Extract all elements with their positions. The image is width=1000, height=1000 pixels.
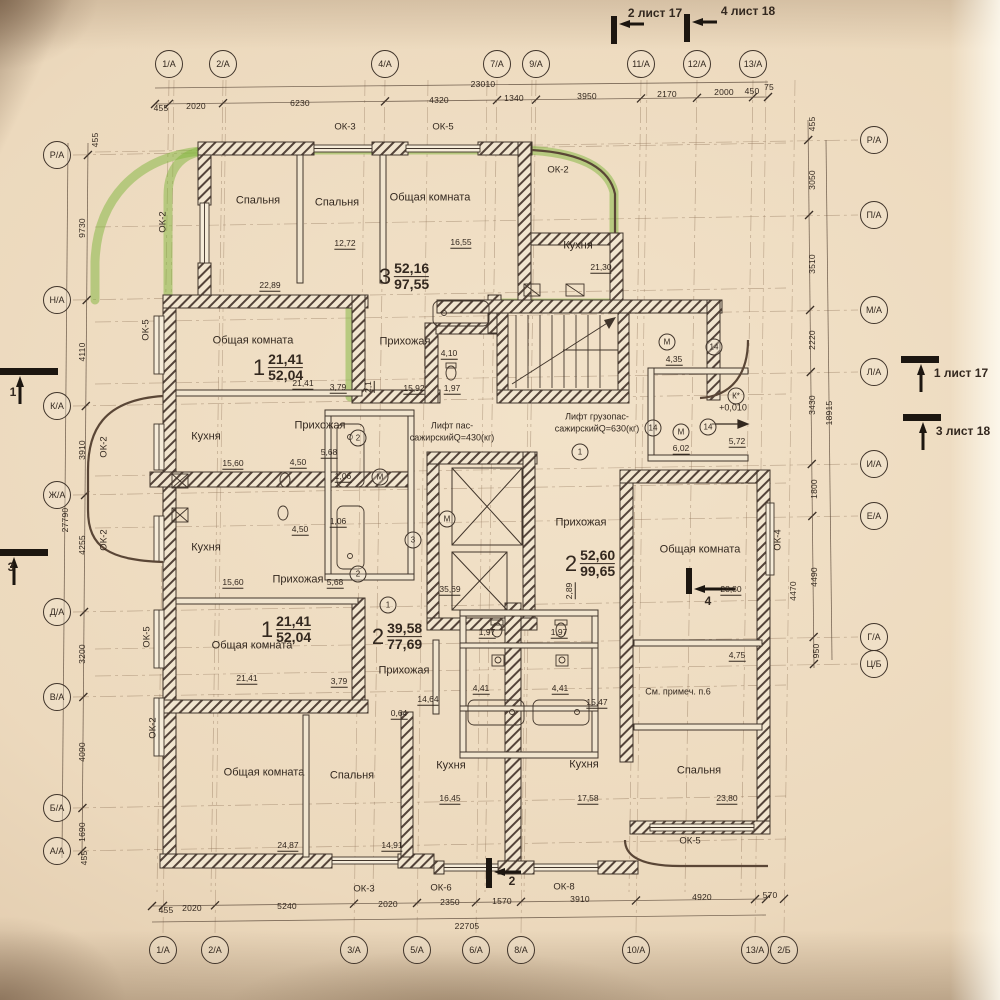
apartment-label-2: 252,6099,65 [565, 548, 615, 580]
axis-circle-top-2/А: 2/А [209, 50, 237, 78]
room-area-value: 1,97 [444, 384, 461, 395]
room-label: Кухня [191, 543, 220, 554]
axis-circle-bottom-5/А: 5/А [403, 936, 431, 964]
room-area-value: 17,58 [577, 794, 598, 805]
axis-circle-right-И/А: И/А [860, 450, 888, 478]
dimension-label: 2220 [808, 330, 817, 350]
room-label: Общая комната [390, 193, 471, 204]
dimension-label: 1690 [78, 822, 87, 842]
circled-mark-14: 14 [645, 420, 662, 437]
dimension-label: 570 [763, 891, 778, 900]
elevator-label-1: Лифт пас-сажирскийQ=430(кг) [410, 420, 495, 443]
window-label-ОК-5: ОК-5 [141, 319, 151, 340]
dimension-label: 27790 [61, 508, 70, 533]
room-area-value: 5,68 [321, 448, 338, 459]
room-area-value: 6,02 [673, 444, 690, 455]
circled-mark-3: 3 [405, 532, 422, 549]
room-area-value: 23,80 [716, 794, 737, 805]
room-area-value: 4,75 [729, 651, 746, 662]
room-label: Прихожая [556, 518, 607, 529]
axis-circle-bottom-10/А: 10/А [622, 936, 650, 964]
dimension-label: 4920 [692, 893, 712, 902]
dimension-label: 22705 [455, 922, 480, 931]
window-label-ОК-2: ОК-2 [148, 717, 158, 738]
room-area-value: 4,41 [552, 684, 569, 695]
dimension-label: 4490 [810, 567, 819, 587]
circled-mark-М: М [372, 469, 389, 486]
circled-mark-2: 2 [350, 430, 367, 447]
room-label: Общая комната [213, 336, 294, 347]
room-area-value: 15,92 [403, 384, 424, 395]
dimension-label: 1570 [492, 897, 512, 906]
axis-circle-top-11/А: 11/А [627, 50, 655, 78]
sheet-marker-left: 1 [10, 386, 17, 398]
room-area-value: 1,97 [551, 628, 568, 639]
room-label: Кухня [563, 241, 592, 252]
window-label-ОК-3: ОК-3 [353, 884, 374, 894]
axis-circle-top-1/А: 1/А [155, 50, 183, 78]
note-text: +0,010 [719, 404, 747, 413]
circled-mark-М: М [673, 424, 690, 441]
dimension-label: 4110 [78, 342, 87, 361]
dimension-label: 3510 [808, 254, 817, 274]
dimension-label: 455 [80, 851, 89, 866]
apartment-label-1: 121,4152,04 [261, 614, 311, 646]
axis-circle-left-В/А: В/А [43, 683, 71, 711]
window-label-ОК-5: ОК-5 [679, 836, 700, 846]
room-label: Спальня [330, 771, 374, 782]
dimension-label: 1800 [810, 479, 819, 499]
room-area-value: 4,41 [473, 684, 490, 695]
circled-mark-14: 14 [700, 419, 717, 436]
note-text: См. примеч. п.6 [645, 688, 711, 697]
axis-circle-right-Ц/Б: Ц/Б [860, 650, 888, 678]
dimension-label: 455 [91, 133, 100, 148]
axis-circle-bottom-2/Б: 2/Б [770, 936, 798, 964]
room-area-value: 2,1 [364, 381, 375, 393]
sheet-marker-right: 1 лист 17 [934, 367, 988, 379]
room-area-value: 24,87 [277, 841, 298, 852]
room-area-value: 0,64 [391, 709, 408, 720]
room-area-value: 14,64 [417, 695, 438, 706]
circled-mark-М: М [439, 511, 456, 528]
elevator-label-2: Лифт грузопас-сажирскийQ=630(кг) [555, 411, 640, 434]
dimension-label: 6230 [290, 99, 310, 108]
room-label: Общая комната [224, 768, 305, 779]
axis-circle-top-7/А: 7/А [483, 50, 511, 78]
room-area-value: 5,72 [729, 437, 746, 448]
dimension-label: 3910 [570, 895, 590, 904]
dimension-label: 4320 [429, 96, 449, 105]
axis-circle-right-Л/А: Л/А [860, 358, 888, 386]
room-area-value: 21,30 [590, 263, 611, 274]
dimension-label: 455 [159, 906, 174, 915]
room-label: Спальня [315, 198, 359, 209]
room-area-value: 21,41 [236, 674, 257, 685]
circled-mark-1: 1 [380, 597, 397, 614]
window-label-ОК-4: ОК-4 [773, 529, 783, 550]
window-label-ОК-5: ОК-5 [142, 626, 152, 647]
window-label-ОК-6: ОК-6 [430, 883, 451, 893]
dimension-label: 18915 [825, 401, 834, 426]
axis-circle-right-М/А: М/А [860, 296, 888, 324]
room-area-value: 4,50 [290, 458, 307, 469]
axis-circle-right-Г/А: Г/А [860, 623, 888, 651]
axis-circle-left-Д/А: Д/А [43, 598, 71, 626]
room-area-value: 16,55 [450, 238, 471, 249]
room-label: Спальня [236, 196, 280, 207]
axis-circle-left-Р/А: Р/А [43, 141, 71, 169]
axis-circle-right-П/А: П/А [860, 201, 888, 229]
axis-circle-left-Н/А: Н/А [43, 286, 71, 314]
axis-circle-left-К/А: К/А [43, 392, 71, 420]
apartment-label-3: 352,1697,55 [379, 261, 429, 293]
dimension-label: 5240 [277, 902, 297, 911]
circled-mark-М: М [659, 334, 676, 351]
room-area-value: 14,91 [381, 841, 402, 852]
dimension-label: 2000 [714, 88, 734, 97]
dimension-label: 3430 [808, 395, 817, 415]
room-area-value: 15,60 [222, 459, 243, 470]
dimension-label: 2170 [657, 90, 677, 99]
room-area-value: 4,35 [666, 355, 683, 366]
room-area-value: 16,45 [439, 794, 460, 805]
sheet-marker-top: 2 лист 17 [628, 7, 682, 19]
dimension-label: 4255 [78, 535, 87, 555]
room-area-value: 28,80 [720, 585, 741, 596]
axis-circle-top-12/А: 12/А [683, 50, 711, 78]
room-area-value: 2,89 [565, 583, 576, 600]
room-area-value: 1,06 [330, 517, 347, 528]
room-area-value: 1,06 [335, 472, 352, 483]
room-area-value: 22,89 [259, 281, 280, 292]
window-label-ОК-2: ОК-2 [99, 436, 109, 457]
axis-circle-top-13/А: 13/А [739, 50, 767, 78]
axis-circle-top-4/А: 4/А [371, 50, 399, 78]
room-label: Кухня [569, 760, 598, 771]
dimension-label: 3050 [808, 170, 817, 190]
room-label: Прихожая [295, 421, 346, 432]
room-area-value: 3,79 [331, 677, 348, 688]
dimension-label: 2350 [440, 898, 460, 907]
room-area-value: 15,60 [222, 578, 243, 589]
axis-circle-bottom-1/А: 1/А [149, 936, 177, 964]
axis-circle-bottom-13/А: 13/А [741, 936, 769, 964]
dimension-label: 75 [764, 83, 774, 92]
sheet-marker-section: 4 [705, 595, 712, 607]
window-label-ОК-2: ОК-2 [547, 165, 568, 175]
apartment-label-2: 239,5877,69 [372, 621, 422, 653]
room-label: Прихожая [379, 666, 430, 677]
sheet-marker-bottom: 2 [509, 875, 516, 887]
dimension-label: 450 [745, 87, 760, 96]
sheet-marker-right: 3 лист 18 [936, 425, 990, 437]
room-area-value: 1,97 [479, 628, 496, 639]
window-label-ОК-5: ОК-5 [432, 122, 453, 132]
window-label-ОК-2: ОК-2 [99, 529, 109, 550]
dimension-label: 4470 [789, 581, 798, 601]
plan-labels-layer: 1/А2/А4/А7/А9/А11/А12/А13/А1/А2/А3/А5/А6… [0, 0, 1000, 1000]
circled-mark-14: 14 [706, 339, 723, 356]
room-label: Прихожая [380, 337, 431, 348]
room-area-value: 3,79 [330, 383, 347, 394]
room-label: Спальня [677, 766, 721, 777]
dimension-label: 2020 [378, 900, 398, 909]
dimension-label: 2020 [182, 904, 202, 913]
dimension-label: 455 [154, 104, 169, 113]
dimension-label: 1340 [504, 94, 524, 103]
room-label: Общая комната [660, 545, 741, 556]
room-area-value: 4,10 [441, 349, 458, 360]
room-label: Кухня [191, 432, 220, 443]
dimension-label: 455 [808, 117, 817, 132]
apartment-label-1: 121,4152,04 [253, 352, 303, 384]
sheet-marker-top: 4 лист 18 [721, 5, 775, 17]
room-area-value: 35,69 [439, 585, 460, 596]
axis-circle-bottom-8/А: 8/А [507, 936, 535, 964]
dimension-label: 2020 [186, 102, 206, 111]
axis-circle-left-Б/А: Б/А [43, 794, 71, 822]
room-area-value: 4,50 [292, 525, 309, 536]
axis-circle-bottom-2/А: 2/А [201, 936, 229, 964]
room-area-value: 5,68 [327, 578, 344, 589]
axis-circle-right-Р/А: Р/А [860, 126, 888, 154]
sheet-marker-left: 3 [8, 561, 15, 573]
blueprint-photo: 1/А2/А4/А7/А9/А11/А12/А13/А1/А2/А3/А5/А6… [0, 0, 1000, 1000]
axis-circle-left-Ж/А: Ж/А [43, 481, 71, 509]
room-area-value: 12,72 [334, 239, 355, 250]
dimension-label: 23010 [471, 80, 496, 89]
circled-mark-2: 2 [350, 566, 367, 583]
dimension-label: 3950 [577, 92, 597, 101]
room-label: Кухня [436, 761, 465, 772]
room-label: Прихожая [273, 575, 324, 586]
dimension-label: 4090 [78, 742, 87, 762]
axis-circle-left-А/А: А/А [43, 837, 71, 865]
window-label-ОК-8: ОК-8 [553, 882, 574, 892]
window-label-ОК-2: ОК-2 [158, 211, 168, 232]
room-area-value: 15,47 [586, 698, 607, 709]
window-label-ОК-3: ОК-3 [334, 122, 355, 132]
dimension-label: 3910 [78, 440, 87, 460]
dimension-label: 950 [812, 644, 821, 659]
dimension-label: 9730 [78, 218, 87, 238]
axis-circle-bottom-3/А: 3/А [340, 936, 368, 964]
axis-circle-bottom-6/А: 6/А [462, 936, 490, 964]
dimension-label: 3200 [78, 644, 87, 664]
axis-circle-top-9/А: 9/А [522, 50, 550, 78]
axis-circle-right-Е/А: Е/А [860, 502, 888, 530]
circled-mark-1: 1 [572, 444, 589, 461]
